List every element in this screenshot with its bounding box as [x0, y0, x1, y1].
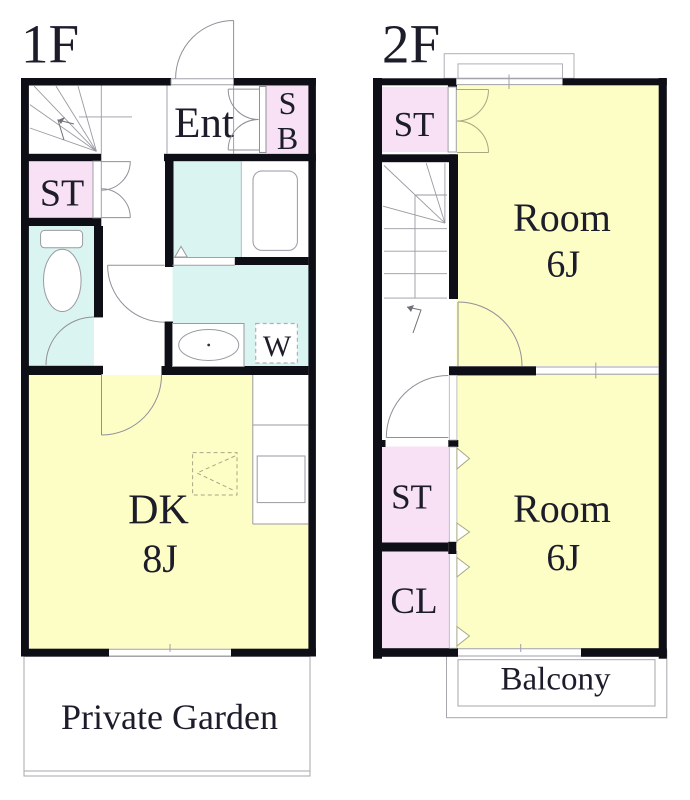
svg-text:Ent: Ent — [174, 100, 234, 147]
svg-text:B: B — [277, 120, 298, 156]
svg-text:S: S — [279, 85, 297, 121]
svg-text:Room: Room — [513, 486, 611, 531]
svg-text:Room: Room — [513, 195, 611, 240]
svg-text:6J: 6J — [546, 244, 580, 286]
svg-text:8J: 8J — [142, 536, 178, 581]
svg-text:ST: ST — [391, 478, 432, 517]
svg-text:ST: ST — [40, 173, 84, 215]
svg-text:CL: CL — [390, 581, 437, 622]
svg-text:Private Garden: Private Garden — [61, 697, 278, 737]
svg-text:ST: ST — [394, 105, 435, 144]
svg-text:W: W — [263, 330, 292, 363]
svg-text:DK: DK — [128, 488, 189, 534]
svg-text:2F: 2F — [382, 14, 440, 75]
svg-text:6J: 6J — [546, 537, 580, 579]
svg-text:1F: 1F — [21, 14, 79, 75]
svg-text:Balcony: Balcony — [501, 662, 611, 698]
